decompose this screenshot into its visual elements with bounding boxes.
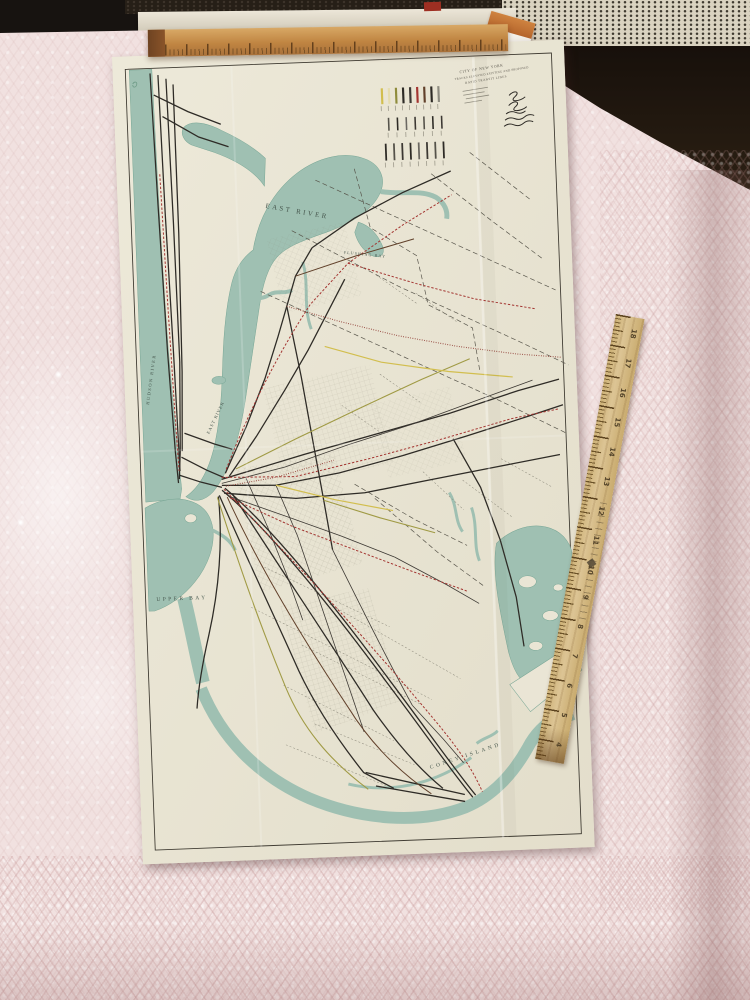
transit-map-sheet: EAST RIVER FLUSHING BAY HUDSON RIVER EAS… <box>112 40 595 865</box>
ruler-number: 11 <box>590 535 599 548</box>
ruler-number: 12 <box>596 505 605 518</box>
cloth-fold-shadow <box>668 170 750 1000</box>
light-speck <box>56 372 61 377</box>
top-ruler-endcap <box>148 30 165 57</box>
light-speck <box>18 520 23 525</box>
ruler-number: 10 <box>585 564 594 577</box>
map-canvas: EAST RIVER FLUSHING BAY HUDSON RIVER EAS… <box>112 40 595 865</box>
red-tag <box>424 2 441 12</box>
bay-island <box>553 584 563 591</box>
ruler-number: 17 <box>623 358 632 371</box>
cloth-bottom-shade <box>0 925 750 1000</box>
right-ruler-wear <box>535 725 570 764</box>
governors-island <box>185 514 197 523</box>
ruler-number: 14 <box>607 446 616 459</box>
ruler-number: 15 <box>612 417 621 430</box>
top-ruler <box>148 24 508 57</box>
ruler-number: 13 <box>601 476 610 489</box>
ruler-number: 16 <box>617 387 626 400</box>
ruler-number: 18 <box>628 328 637 341</box>
